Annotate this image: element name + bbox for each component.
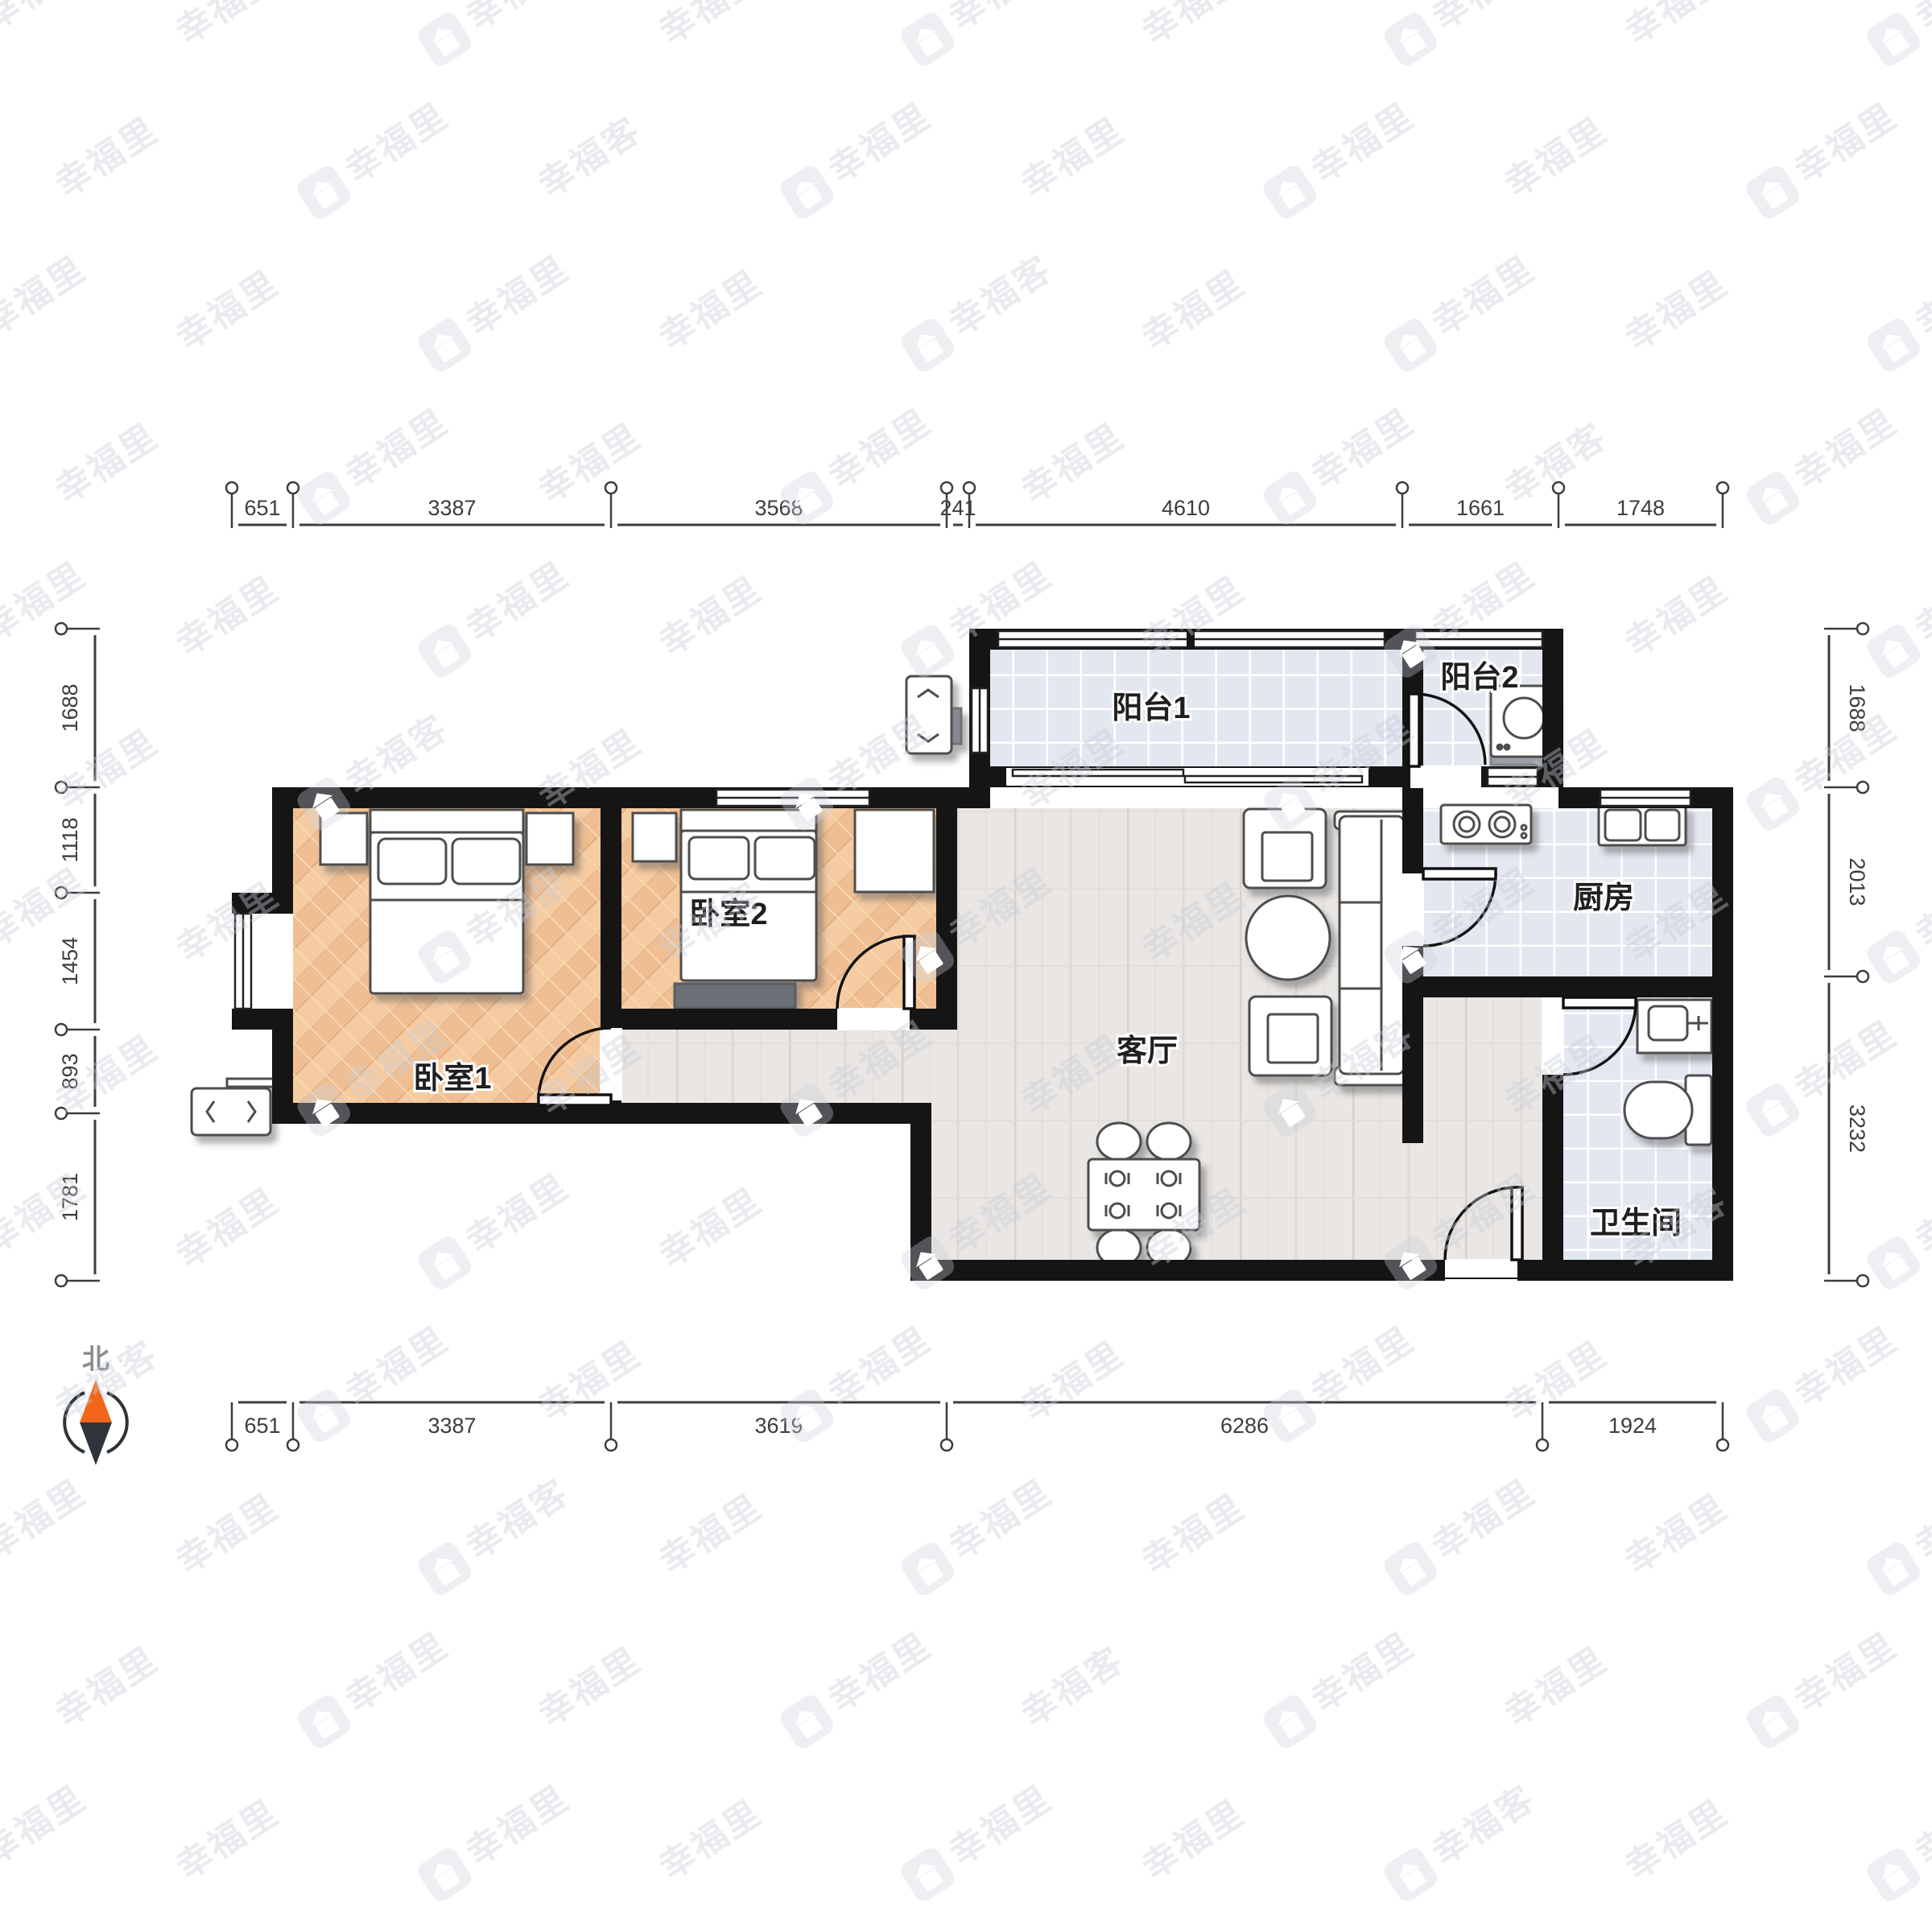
sofa [1335, 811, 1409, 1085]
floorplan-canvas: 阳台1 阳台2 卧室1 卧室2 客厅 厨房 卫生间 北 651338735682… [0, 0, 1932, 1932]
dim-top-1: 3387 [427, 496, 476, 520]
dim-left-1: 1118 [58, 817, 82, 862]
dim-bottom-4: 1924 [1608, 1414, 1657, 1438]
coffee-table [1246, 896, 1330, 980]
dim-right-0: 1688 [1845, 683, 1869, 732]
bathroom-vanity [1637, 1000, 1711, 1053]
stove [1441, 805, 1531, 844]
dim-left-0: 1688 [58, 683, 82, 732]
balcony2-bottom-window [1488, 768, 1538, 786]
armchair-top [1244, 809, 1326, 888]
ac-unit-balcony1 [906, 676, 961, 753]
balcony1-top-window [998, 630, 1385, 649]
dim-right-2: 3232 [1845, 1104, 1869, 1153]
dim-top-0: 651 [244, 496, 280, 520]
dim-top-2: 3568 [754, 496, 803, 520]
dim-bottom-2: 3619 [754, 1414, 803, 1438]
dim-top-3: 241 [939, 496, 976, 520]
compass-icon [64, 1380, 127, 1465]
kitchen-window [1600, 790, 1690, 806]
room-label-living-room: 客厅 [1117, 1034, 1178, 1068]
compass-north-label: 北 [82, 1344, 109, 1375]
room-label-balcony2: 阳台2 [1440, 661, 1518, 695]
dim-left-3: 893 [58, 1053, 82, 1089]
dim-left-4: 1781 [58, 1173, 82, 1221]
room-label-bedroom1: 卧室1 [413, 1061, 491, 1096]
hallway-floor [621, 1030, 957, 1103]
dim-top-5: 1661 [1456, 496, 1505, 520]
ac-unit-west [192, 1079, 280, 1135]
room-label-balcony1: 阳台1 [1112, 691, 1190, 725]
bay-window-floor [251, 914, 293, 1009]
dim-top-4: 4610 [1162, 496, 1210, 520]
compass: 北 [64, 1344, 127, 1465]
room-label-bedroom2: 卧室2 [689, 897, 767, 931]
dim-bottom-1: 3387 [427, 1414, 476, 1438]
dim-top-6: 1748 [1616, 496, 1665, 520]
balcony1-sliding-door [1006, 768, 1368, 786]
dim-left-2: 1454 [58, 937, 82, 985]
room-label-kitchen: 厨房 [1573, 881, 1634, 915]
toilet [1624, 1075, 1711, 1145]
dim-bottom-3: 6286 [1220, 1414, 1269, 1438]
tv-cabinet-bedroom2 [675, 984, 795, 1008]
wardrobe-bedroom2 [855, 810, 934, 892]
bedroom2-window [716, 790, 869, 806]
armchair-bottom [1249, 997, 1331, 1075]
floorplan-drawing: 阳台1 阳台2 卧室1 卧室2 客厅 厨房 卫生间 北 651338735682… [0, 0, 1932, 1932]
bay-window-bedroom1 [235, 914, 251, 1009]
dim-bottom-0: 651 [244, 1414, 280, 1438]
dim-right-1: 2013 [1845, 857, 1869, 906]
balcony1-side-window [972, 688, 988, 753]
balcony2-top-window [1415, 631, 1542, 647]
room-label-bathroom: 卫生间 [1590, 1207, 1682, 1241]
